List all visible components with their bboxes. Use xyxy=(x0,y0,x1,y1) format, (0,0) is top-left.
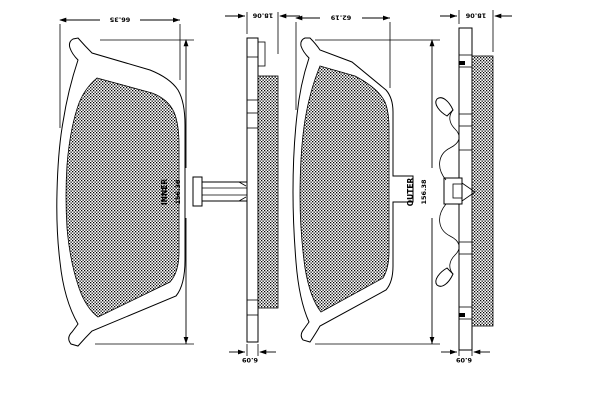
spring-lower-leaf xyxy=(436,268,453,286)
inner-pad-edge-view xyxy=(193,38,278,342)
brake-pad-drawing: 66.35 156.38 INNER xyxy=(0,0,600,400)
outer-backplate-dimension: 6.09 xyxy=(441,350,490,364)
outer-backplate-value: 6.09 xyxy=(456,356,473,364)
inner-backplate-value: 6.09 xyxy=(242,356,259,364)
spring-upper-arm xyxy=(440,110,460,180)
outer-height-value: 156.38 xyxy=(420,179,428,205)
outer-pad-edge-view xyxy=(436,28,493,350)
outer-width-value: 62.19 xyxy=(330,14,351,22)
spring-lower-arm xyxy=(440,204,460,274)
inner-edge-backplate xyxy=(247,38,258,342)
spring-upper-leaf xyxy=(436,98,453,116)
inner-thickness-dimension: 18.06 xyxy=(225,12,300,55)
outer-edge-friction-material xyxy=(472,56,493,326)
inner-backplate-dimension: 6.09 xyxy=(229,344,276,364)
inner-edge-friction-material xyxy=(258,76,278,308)
technical-drawing-canvas: 66.35 156.38 INNER xyxy=(0,0,600,400)
inner-pad-guide-pin xyxy=(193,177,247,206)
inner-width-value: 66.35 xyxy=(109,16,130,24)
inner-height-value: 156.38 xyxy=(174,179,182,205)
outer-thickness-dimension: 18.06 xyxy=(440,10,512,52)
outer-side-label: OUTER xyxy=(406,178,415,207)
outer-pad-friction-material xyxy=(300,66,389,312)
outer-pad-front-view xyxy=(293,38,413,342)
outer-thickness-value: 18.06 xyxy=(465,12,486,20)
inner-thickness-value: 18.06 xyxy=(252,12,273,20)
inner-edge-top-tab xyxy=(258,42,265,66)
inner-side-label: INNER xyxy=(160,179,169,205)
